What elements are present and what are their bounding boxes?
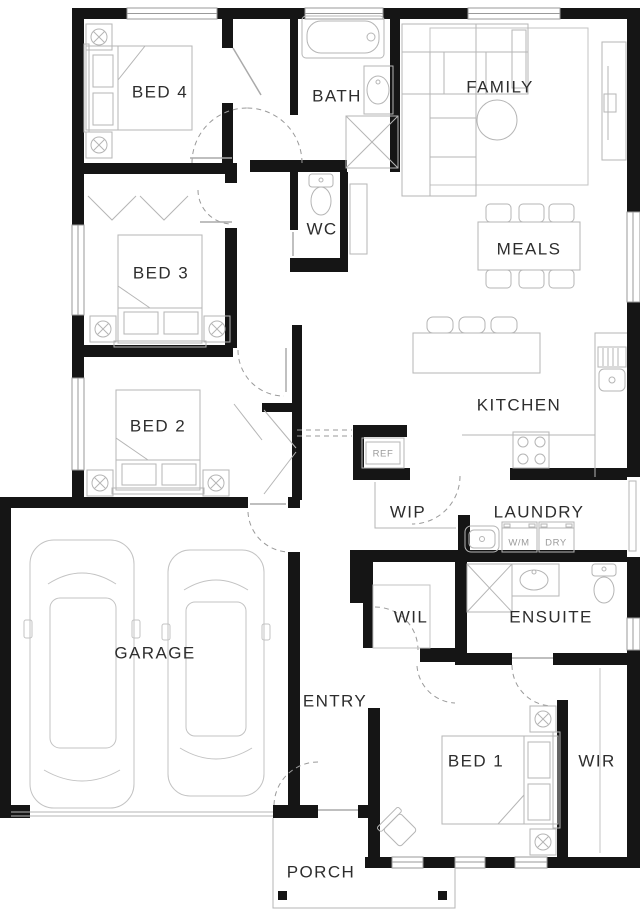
room-label-bath: BATH — [312, 87, 362, 106]
bed4-furniture — [84, 24, 192, 220]
room-label-kitchen: KITCHEN — [477, 396, 561, 415]
kitchen-sink-icon — [598, 347, 626, 391]
porch-post — [278, 891, 287, 900]
car-icon — [162, 550, 270, 796]
room-label-bed3: BED 3 — [133, 264, 189, 283]
chair-icon — [377, 807, 419, 849]
door-arc — [248, 512, 288, 552]
chair-icon — [549, 270, 574, 288]
room-label-ensuite: ENSUITE — [509, 608, 592, 627]
cooktop-icon — [513, 432, 549, 468]
chair-icon — [486, 204, 511, 222]
chair-icon — [549, 204, 574, 222]
fixture-label-washer: W/M — [508, 538, 529, 549]
room-label-bed1: BED 1 — [448, 752, 504, 771]
bedside-table-light-icon — [90, 316, 116, 342]
tv-unit — [602, 42, 626, 160]
car-icon — [24, 540, 140, 808]
stool-icon — [459, 317, 485, 333]
window-icon — [72, 378, 84, 470]
bedside-table-light-icon — [530, 706, 556, 732]
walls — [0, 8, 640, 868]
room-label-bed2: BED 2 — [130, 417, 186, 436]
door-arc — [238, 350, 284, 396]
window-icon — [515, 857, 547, 868]
ensuite-fixtures — [467, 564, 616, 612]
room-label-wip: WIP — [390, 503, 426, 522]
chair-icon — [519, 270, 544, 288]
room-label-wc: WC — [306, 220, 337, 239]
window-icon — [627, 618, 640, 650]
ottoman-icon — [477, 100, 517, 140]
room-label-garage: GARAGE — [114, 644, 195, 663]
bed-icon — [114, 235, 206, 347]
stool-icon — [491, 317, 517, 333]
door-arc — [198, 190, 232, 224]
bath-fixtures — [302, 16, 398, 254]
window-icon — [468, 8, 560, 19]
toilet-icon — [309, 174, 333, 215]
toilet-icon — [592, 564, 616, 603]
door-arc — [417, 666, 455, 703]
laundry-tub-icon — [465, 526, 499, 552]
bedside-table-light-icon — [530, 829, 556, 855]
room-label-meals: MEALS — [497, 240, 562, 259]
island-bench — [413, 333, 540, 373]
window-icon — [72, 225, 84, 315]
room-label-porch: PORCH — [287, 863, 355, 882]
vanity-sink-icon — [512, 564, 559, 596]
garage-contents — [11, 540, 273, 816]
chair-icon — [486, 270, 511, 288]
counter-edge — [595, 333, 627, 477]
bedside-table-light-icon — [203, 470, 229, 496]
floor-plan-drawing: BED 4 BATH FAMILY WC BED 3 MEALS BED 2 K… — [0, 0, 640, 912]
room-label-family: FAMILY — [466, 78, 534, 97]
room-label-entry: ENTRY — [303, 692, 367, 711]
room-label-wil: WIL — [394, 608, 428, 627]
room-label-wir: WIR — [578, 752, 615, 771]
window-icon — [392, 857, 423, 868]
bathtub-icon — [302, 16, 384, 58]
bedside-table-light-icon — [86, 132, 112, 158]
floor-plan: BED 4 BATH FAMILY WC BED 3 MEALS BED 2 K… — [0, 0, 640, 912]
window-icon — [305, 8, 383, 19]
sofa-icon — [402, 24, 528, 196]
robe-doors-icon — [234, 404, 296, 494]
bed3-furniture — [90, 235, 230, 347]
bed-icon — [112, 390, 204, 494]
door-arc — [192, 108, 247, 163]
fixture-label-dryer: DRY — [545, 538, 567, 549]
chair-icon — [519, 204, 544, 222]
vanity-sink-icon — [364, 66, 393, 114]
door-leaf — [233, 48, 261, 95]
room-label-bed4: BED 4 — [132, 83, 188, 102]
bed-icon — [442, 732, 560, 828]
door-leaf — [629, 481, 636, 551]
room-label-laundry: LAUNDRY — [494, 503, 585, 522]
shower-icon — [467, 564, 512, 612]
door-arc — [247, 108, 302, 163]
porch-post — [438, 891, 447, 900]
window-icon — [455, 857, 485, 868]
robe-doors-icon — [88, 196, 188, 220]
family-room-furniture — [402, 24, 626, 196]
window-icon — [627, 212, 640, 302]
linen-cupboard — [350, 184, 367, 254]
fixture-label-fridge: REF — [373, 449, 394, 460]
door-arc — [512, 665, 553, 706]
window-icon — [127, 8, 217, 19]
bedside-table-light-icon — [87, 470, 113, 496]
stool-icon — [427, 317, 453, 333]
